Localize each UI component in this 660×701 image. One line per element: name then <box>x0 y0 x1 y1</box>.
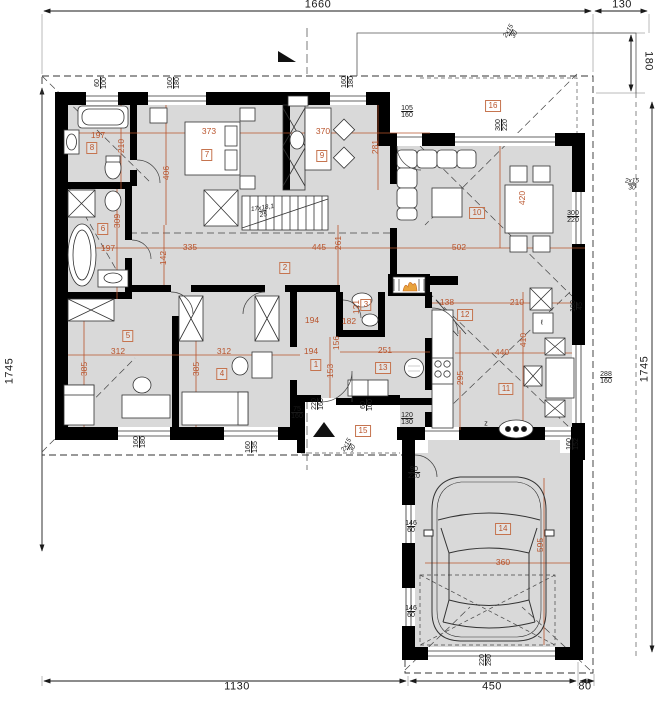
toilet <box>105 191 121 211</box>
kitchen-table <box>546 358 574 398</box>
freestanding-bathtub <box>68 224 96 286</box>
stairs <box>242 196 328 230</box>
boiler <box>405 359 424 378</box>
desk <box>305 108 331 170</box>
chair <box>150 108 167 123</box>
floor-plan: 1660130180174517451130450801973733702104… <box>0 0 660 701</box>
gas-meter-icon <box>499 420 533 438</box>
fireplace-icon <box>388 274 430 296</box>
sink <box>98 270 128 287</box>
shelf <box>288 96 308 106</box>
fridge <box>533 313 553 333</box>
stove <box>432 358 453 384</box>
floor-fills <box>68 105 572 647</box>
plan-linework <box>0 0 660 701</box>
sink <box>362 314 378 326</box>
desk <box>252 352 272 378</box>
desk <box>122 395 170 418</box>
desk-chair <box>290 131 304 149</box>
dining-table <box>505 185 553 233</box>
desk-chair <box>232 357 248 375</box>
desk-chair <box>133 377 151 393</box>
section-marker-icon <box>278 51 296 62</box>
coffee-table <box>432 188 462 217</box>
